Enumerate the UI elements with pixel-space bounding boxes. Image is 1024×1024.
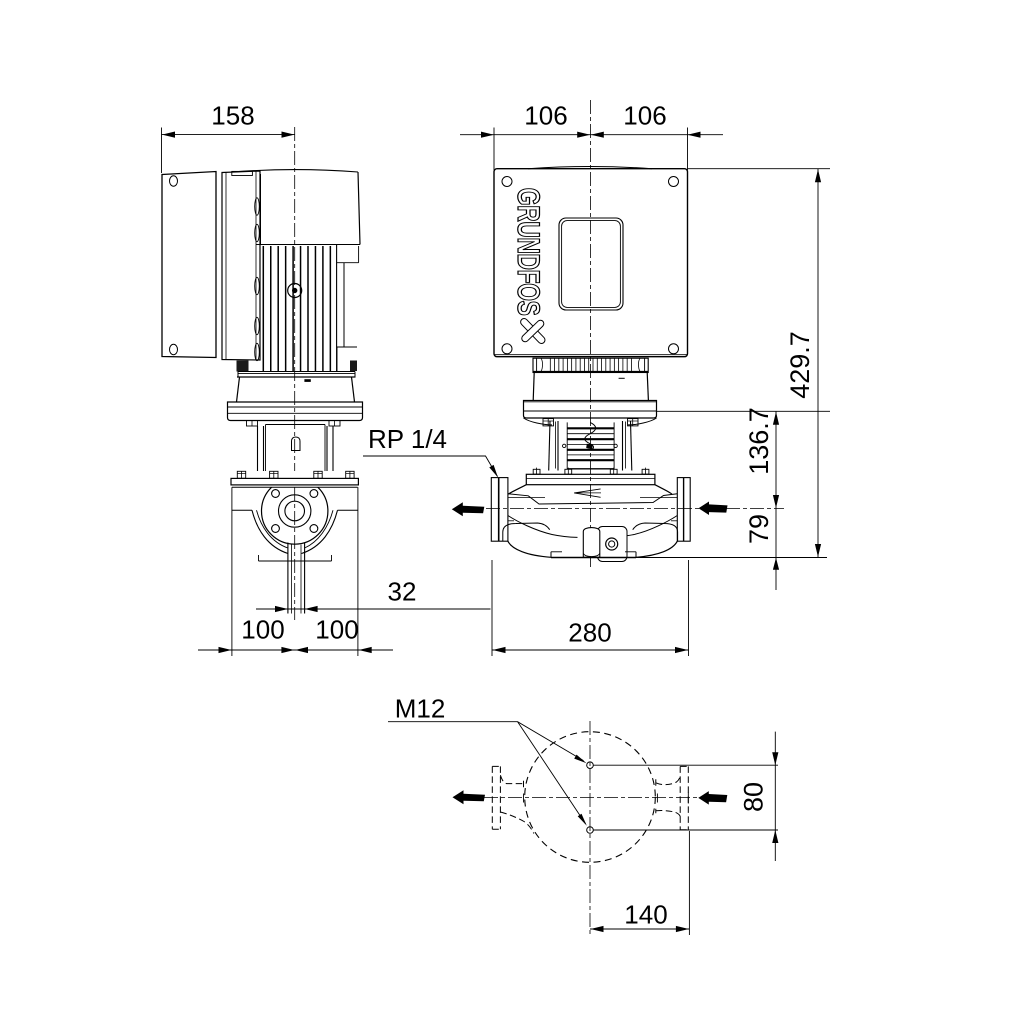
svg-text:100: 100 bbox=[315, 615, 358, 645]
svg-text:GRUNDFOS: GRUNDFOS bbox=[511, 188, 546, 316]
svg-text:106: 106 bbox=[524, 101, 567, 131]
svg-text:79: 79 bbox=[744, 514, 774, 544]
svg-text:106: 106 bbox=[623, 101, 666, 131]
svg-text:136.7: 136.7 bbox=[744, 407, 774, 475]
svg-text:RP 1/4: RP 1/4 bbox=[368, 424, 447, 454]
svg-text:429.7: 429.7 bbox=[785, 331, 815, 399]
svg-text:100: 100 bbox=[241, 615, 284, 645]
svg-text:32: 32 bbox=[388, 577, 417, 607]
svg-text:158: 158 bbox=[211, 101, 254, 131]
svg-text:M12: M12 bbox=[395, 694, 446, 724]
svg-text:80: 80 bbox=[739, 782, 769, 812]
svg-text:140: 140 bbox=[624, 900, 667, 930]
svg-text:280: 280 bbox=[568, 618, 611, 648]
